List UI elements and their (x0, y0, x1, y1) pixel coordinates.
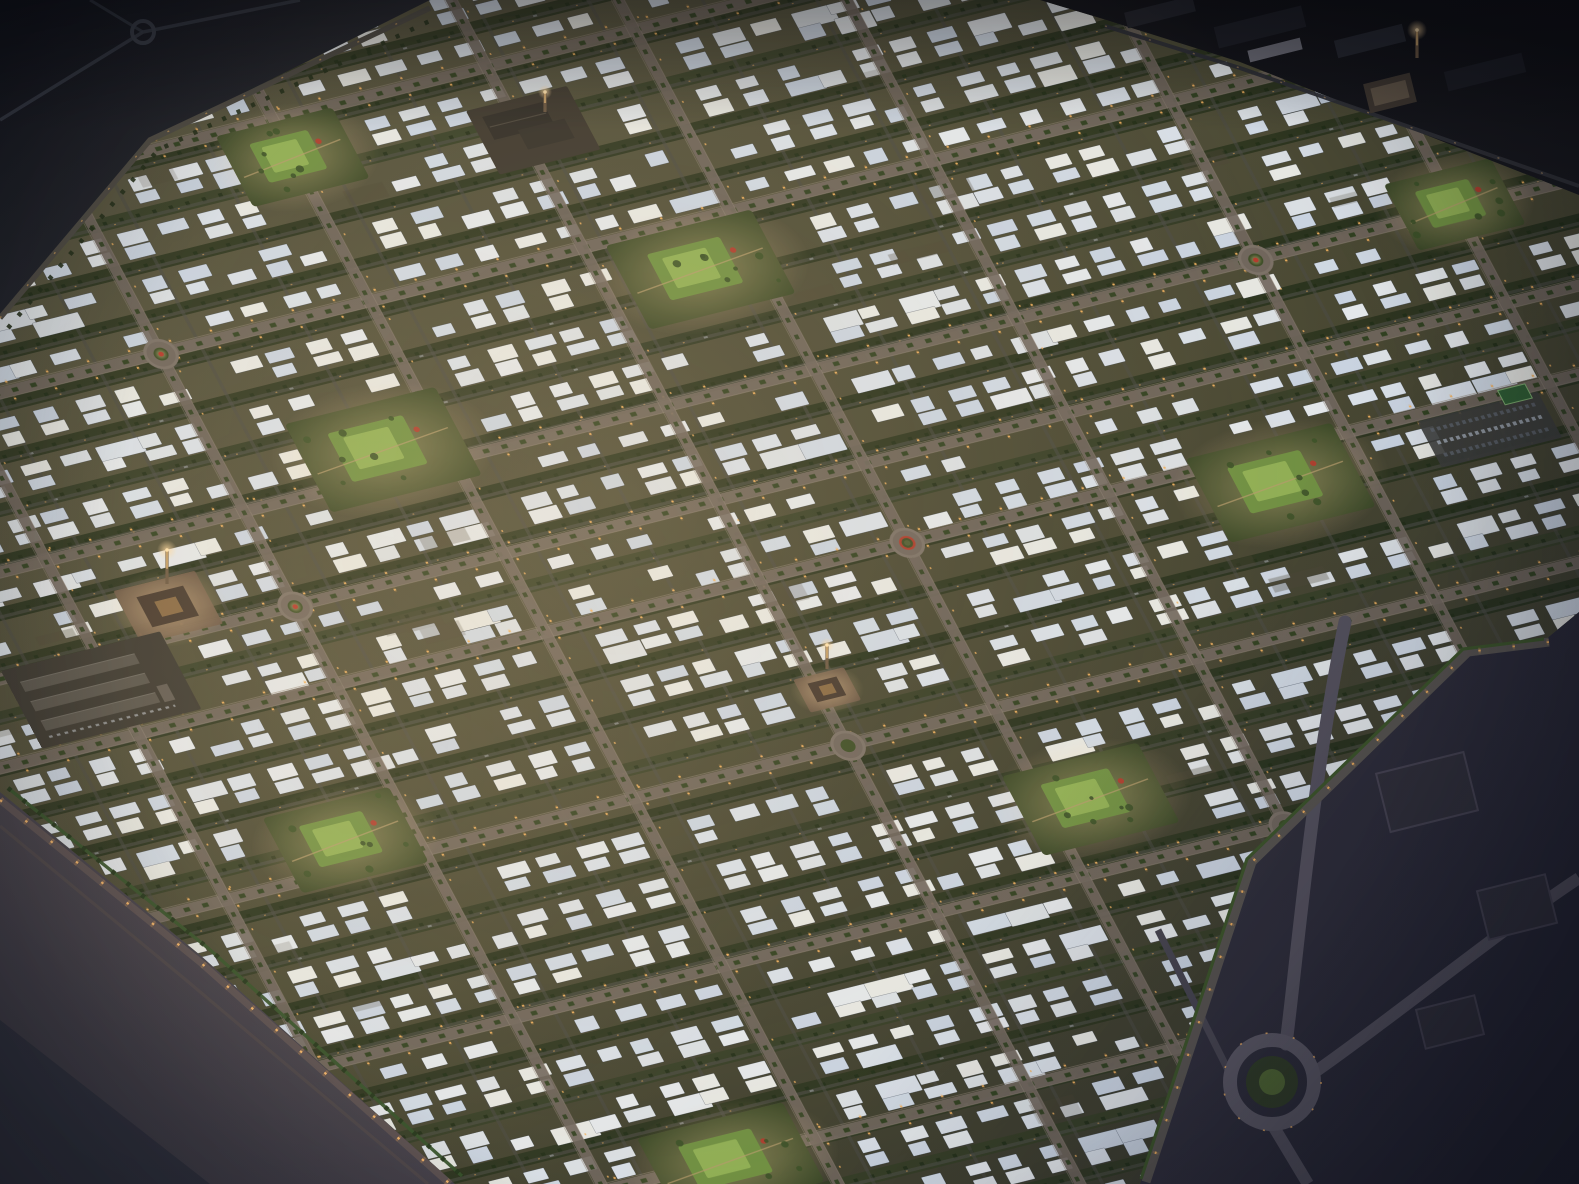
scene-svg (0, 0, 1579, 1184)
aerial-render-image (0, 0, 1579, 1184)
